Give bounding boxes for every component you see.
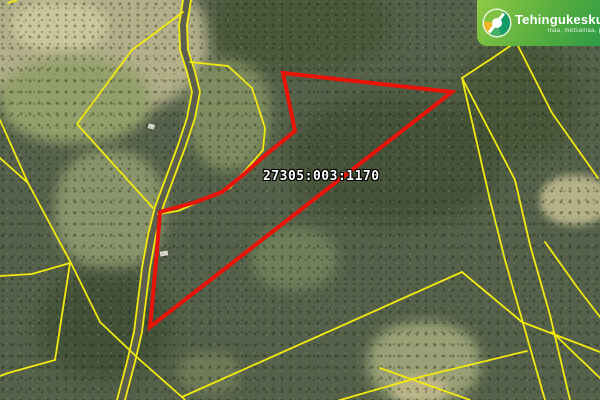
logo-tagline: maa, metsamaa, põld xyxy=(548,28,600,34)
cadastral-boundary-line xyxy=(330,351,527,400)
cadastral-boundary-line xyxy=(0,120,28,183)
logo-banner: Tehingukeskus maa, metsamaa, põld xyxy=(477,0,600,46)
map-viewport[interactable]: 27305:003:1170 Tehingukeskus maa, metsam… xyxy=(0,0,600,400)
logo-title: Tehingukeskus xyxy=(515,13,600,26)
cadastral-overlay xyxy=(0,0,600,400)
logo-hub xyxy=(492,18,502,28)
cadastral-boundary-line xyxy=(132,12,183,50)
cadastral-boundary-line xyxy=(77,50,153,208)
cadastral-boundary-line xyxy=(462,78,570,400)
cadastral-boundary-line xyxy=(0,263,70,376)
cadastral-boundary-line xyxy=(545,242,600,317)
cadastral-boundary-line xyxy=(182,272,600,397)
cadastral-boundary-line xyxy=(8,0,17,3)
cadastral-boundary-line xyxy=(158,62,265,214)
cadastral-boundary-line xyxy=(462,78,545,400)
tehingukeskus-logo-icon xyxy=(484,10,510,36)
cadastral-boundary-line xyxy=(117,0,192,400)
cadastral-boundary-line xyxy=(515,40,598,178)
cadastral-number-label: 27305:003:1170 xyxy=(263,169,380,184)
cadastral-boundary-line xyxy=(0,263,70,276)
